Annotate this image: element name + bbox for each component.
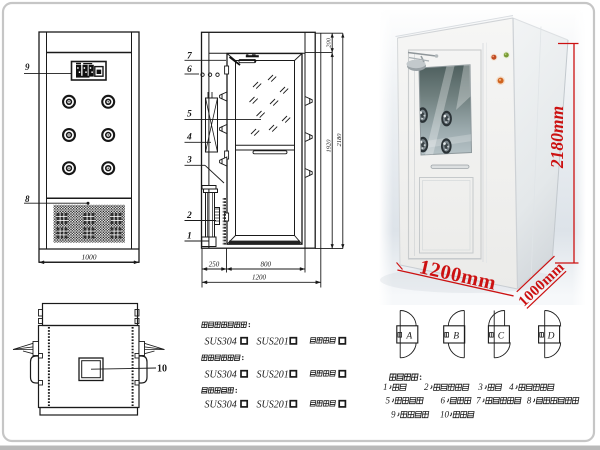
svg-text:9: 9 <box>391 410 396 420</box>
svg-text:SUS304: SUS304 <box>205 337 237 348</box>
svg-text:3: 3 <box>186 156 192 166</box>
svg-text:B: B <box>453 331 459 341</box>
svg-text:1920: 1920 <box>326 139 333 153</box>
svg-text:4: 4 <box>509 382 514 392</box>
svg-text:10: 10 <box>440 410 450 420</box>
svg-text:2180: 2180 <box>336 133 343 147</box>
svg-text:5: 5 <box>386 396 391 406</box>
svg-text:D: D <box>547 331 555 341</box>
svg-text:200: 200 <box>326 37 333 48</box>
svg-text:1000: 1000 <box>82 253 97 262</box>
svg-text:9: 9 <box>25 62 30 72</box>
svg-text:1200: 1200 <box>252 274 267 282</box>
svg-text:C: C <box>498 331 505 341</box>
svg-text:SUS201: SUS201 <box>257 400 289 411</box>
svg-text:5: 5 <box>187 110 192 120</box>
svg-text:7: 7 <box>476 396 481 406</box>
svg-text:A: A <box>405 331 412 341</box>
svg-text:8: 8 <box>527 396 532 406</box>
svg-text:1: 1 <box>383 382 388 392</box>
svg-text:4: 4 <box>186 133 192 143</box>
svg-text:3: 3 <box>477 382 483 392</box>
svg-text:6: 6 <box>187 65 192 75</box>
svg-text:SUS201: SUS201 <box>257 370 289 381</box>
svg-text:2: 2 <box>424 382 429 392</box>
svg-text:800: 800 <box>260 260 271 268</box>
svg-text:6: 6 <box>441 396 446 406</box>
svg-text:SUS304: SUS304 <box>205 400 237 411</box>
svg-text:8: 8 <box>25 194 30 204</box>
svg-text:250: 250 <box>209 260 220 268</box>
svg-text:10: 10 <box>157 364 167 375</box>
svg-text:2: 2 <box>186 211 192 221</box>
svg-text:1: 1 <box>187 231 192 241</box>
svg-text:SUS201: SUS201 <box>257 337 289 348</box>
svg-text:SUS304: SUS304 <box>205 370 237 381</box>
svg-text:2180mm: 2180mm <box>547 106 567 169</box>
